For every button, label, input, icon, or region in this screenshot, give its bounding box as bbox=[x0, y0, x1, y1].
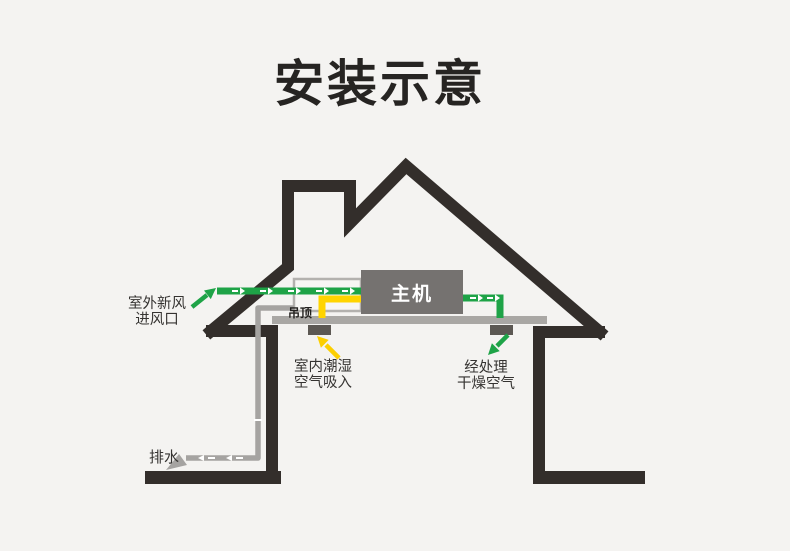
label-indoor-line2: 空气吸入 bbox=[273, 375, 373, 391]
label-treated-line1: 经处理 bbox=[436, 360, 536, 376]
right-floor bbox=[533, 471, 645, 484]
left-wall bbox=[212, 331, 272, 470]
label-outdoor-line2: 进风口 bbox=[107, 312, 207, 328]
label-drain: 排水 bbox=[149, 446, 179, 467]
drain-flow-tick bbox=[254, 419, 262, 421]
dry-air-pipe bbox=[463, 298, 500, 318]
label-outdoor-fresh-air: 室外新风 进风口 bbox=[107, 296, 207, 328]
label-outdoor-line1: 室外新风 bbox=[107, 296, 207, 312]
label-ceiling: 吊顶 bbox=[288, 304, 312, 321]
left-floor bbox=[145, 471, 281, 484]
humid-air-arrow-icon bbox=[317, 336, 339, 358]
right-wall bbox=[539, 332, 599, 470]
return-vent bbox=[308, 325, 331, 335]
label-indoor-humid-air: 室内潮湿 空气吸入 bbox=[273, 359, 373, 391]
ceiling-bar bbox=[272, 316, 547, 324]
label-indoor-line1: 室内潮湿 bbox=[273, 359, 373, 375]
drain-flow-tick bbox=[208, 457, 215, 459]
dry-air-arrow-icon bbox=[488, 335, 508, 355]
supply-vent bbox=[490, 325, 513, 335]
main-unit-label: 主机 bbox=[361, 270, 463, 314]
label-treated-dry-air: 经处理 干燥空气 bbox=[436, 360, 536, 392]
drain-flow-tick bbox=[236, 457, 243, 459]
installation-diagram: 安装示意 bbox=[0, 0, 790, 551]
label-treated-line2: 干燥空气 bbox=[436, 376, 536, 392]
